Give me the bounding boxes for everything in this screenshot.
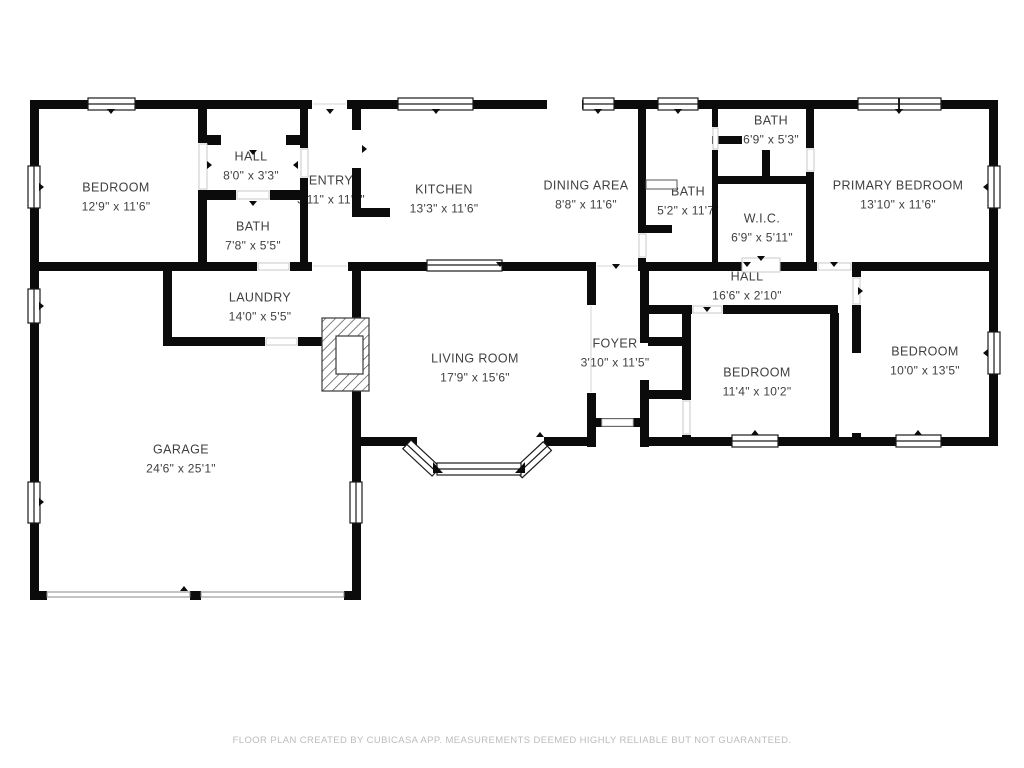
room-name: BATH — [225, 218, 281, 237]
room-dims: 11'4" x 10'2" — [723, 382, 792, 400]
room-dims: 14'0" x 5'5" — [229, 307, 292, 325]
room-label-foyer: FOYER3'10" x 11'5" — [581, 335, 650, 372]
floor-plan: BEDROOM12'9" x 11'6" HALL8'0" x 3'3" BAT… — [0, 0, 1024, 768]
room-name: ENTRY — [297, 172, 365, 191]
room-name: FOYER — [581, 335, 650, 354]
room-label-dining-area: DINING AREA8'8" x 11'6" — [544, 177, 629, 214]
room-name: BATH — [743, 112, 799, 131]
room-name: HALL — [223, 148, 279, 167]
room-label-garage: GARAGE24'6" x 25'1" — [146, 441, 216, 478]
room-name: PRIMARY BEDROOM — [833, 177, 964, 196]
room-labels-layer: BEDROOM12'9" x 11'6" HALL8'0" x 3'3" BAT… — [0, 0, 1024, 768]
room-label-bath-top-left: BATH7'8" x 5'5" — [225, 218, 281, 255]
room-dims: 12'9" x 11'6" — [82, 197, 151, 215]
disclaimer-text: FLOOR PLAN CREATED BY CUBICASA APP. MEAS… — [0, 735, 1024, 746]
room-dims: 17'9" x 15'6" — [431, 368, 519, 386]
room-dims: 10'0" x 13'5" — [890, 361, 960, 379]
room-dims: 3'10" x 11'5" — [581, 353, 650, 371]
room-label-bedroom-right: BEDROOM10'0" x 13'5" — [890, 343, 960, 380]
room-dims: 7'8" x 5'5" — [225, 236, 281, 254]
room-label-kitchen: KITCHEN13'3" x 11'6" — [410, 181, 479, 218]
room-dims: 24'6" x 25'1" — [146, 459, 216, 477]
room-label-living-room: LIVING ROOM17'9" x 15'6" — [431, 350, 519, 387]
room-label-wic: W.I.C.6'9" x 5'11" — [731, 210, 793, 247]
room-label-hall-top: HALL8'0" x 3'3" — [223, 148, 279, 185]
room-name: BEDROOM — [82, 179, 151, 198]
room-dims: 13'3" x 11'6" — [410, 199, 479, 217]
room-dims: 8'0" x 3'3" — [223, 166, 279, 184]
room-name: DINING AREA — [544, 177, 629, 196]
room-label-entry: ENTRY3'11" x 11'6" — [297, 172, 365, 209]
room-name: GARAGE — [146, 441, 216, 460]
room-name: BEDROOM — [723, 364, 792, 383]
room-name: HALL — [712, 268, 782, 287]
room-label-laundry: LAUNDRY14'0" x 5'5" — [229, 289, 292, 326]
room-name: BEDROOM — [890, 343, 960, 362]
room-dims: 6'9" x 5'11" — [731, 228, 793, 246]
room-label-primary-bedroom: PRIMARY BEDROOM13'10" x 11'6" — [833, 177, 964, 214]
room-dims: 6'9" x 5'3" — [743, 130, 799, 148]
room-name: LIVING ROOM — [431, 350, 519, 369]
room-label-bedroom-top-left: BEDROOM12'9" x 11'6" — [82, 179, 151, 216]
room-name: BATH — [657, 183, 719, 202]
room-dims: 16'6" x 2'10" — [712, 286, 782, 304]
room-name: W.I.C. — [731, 210, 793, 229]
room-dims: 13'10" x 11'6" — [833, 195, 964, 213]
room-label-bath-top-right: BATH6'9" x 5'3" — [743, 112, 799, 149]
room-label-hall-middle: HALL16'6" x 2'10" — [712, 268, 782, 305]
room-label-bath-middle: BATH5'2" x 11'7" — [657, 183, 719, 220]
room-label-bedroom-middle: BEDROOM11'4" x 10'2" — [723, 364, 792, 401]
room-name: LAUNDRY — [229, 289, 292, 308]
room-dims: 8'8" x 11'6" — [544, 195, 629, 213]
room-name: KITCHEN — [410, 181, 479, 200]
room-dims: 5'2" x 11'7" — [657, 201, 719, 219]
room-dims: 3'11" x 11'6" — [297, 190, 365, 208]
